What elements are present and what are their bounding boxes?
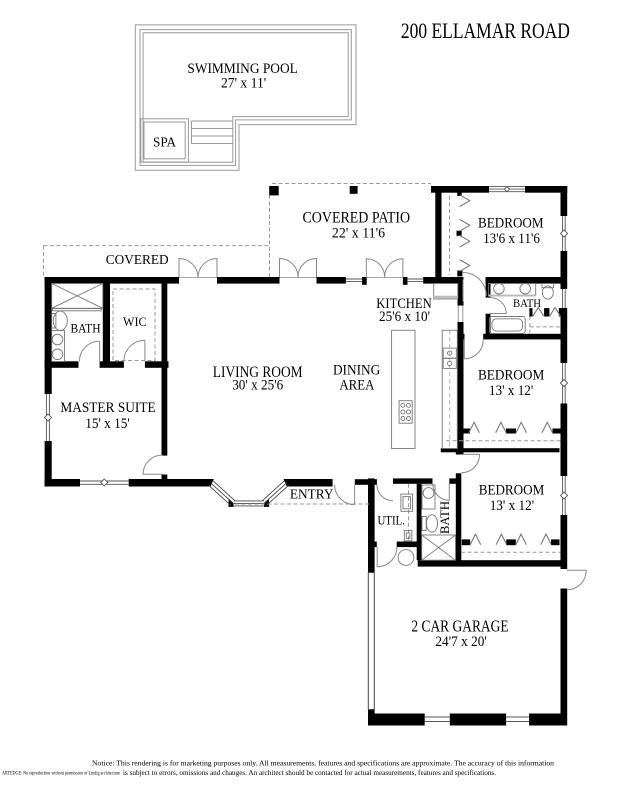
svg-text:15' x 15': 15' x 15' bbox=[85, 416, 130, 432]
svg-text:BEDROOM: BEDROOM bbox=[478, 368, 544, 384]
svg-text:BATH: BATH bbox=[513, 296, 541, 310]
svg-text:UTIL.: UTIL. bbox=[377, 513, 405, 527]
svg-text:BEDROOM: BEDROOM bbox=[479, 483, 545, 499]
svg-text:13' x 12': 13' x 12' bbox=[490, 498, 534, 514]
svg-text:13' x 12': 13' x 12' bbox=[489, 383, 533, 399]
svg-text:AREA: AREA bbox=[339, 377, 374, 393]
svg-text:200 ELLAMAR ROAD: 200 ELLAMAR ROAD bbox=[401, 18, 570, 43]
svg-text:is subject to errors, omission: is subject to errors, omissions and chan… bbox=[123, 769, 496, 777]
svg-text:COVERED PATIO: COVERED PATIO bbox=[303, 210, 411, 227]
svg-text:30' x 25'6: 30' x 25'6 bbox=[232, 378, 283, 394]
svg-text:2 CAR GARAGE: 2 CAR GARAGE bbox=[411, 617, 508, 636]
svg-text:24'7 x 20': 24'7 x 20' bbox=[435, 634, 487, 650]
svg-text:27' x 11': 27' x 11' bbox=[221, 76, 266, 92]
svg-text:COVERED: COVERED bbox=[106, 252, 169, 267]
svg-text:SWIMMING POOL: SWIMMING POOL bbox=[187, 61, 297, 77]
svg-text:22' x 11'6: 22' x 11'6 bbox=[332, 225, 385, 241]
svg-text:BATH: BATH bbox=[71, 321, 101, 335]
svg-text:MASTER SUITE: MASTER SUITE bbox=[60, 400, 155, 416]
svg-text:ARTEDGE: No reproduction witho: ARTEDGE: No reproduction without permiss… bbox=[2, 772, 121, 777]
svg-text:WIC: WIC bbox=[123, 315, 147, 329]
svg-text:ENTRY: ENTRY bbox=[290, 487, 334, 502]
svg-text:DINING: DINING bbox=[333, 362, 381, 378]
svg-text:BATH: BATH bbox=[438, 501, 452, 534]
svg-text:25'6 x 10': 25'6 x 10' bbox=[379, 309, 430, 325]
svg-text:BEDROOM: BEDROOM bbox=[478, 216, 544, 232]
svg-text:SPA: SPA bbox=[153, 135, 177, 150]
svg-text:13'6 x 11'6: 13'6 x 11'6 bbox=[483, 231, 540, 247]
svg-text:Notice: This rendering is for: Notice: This rendering is for marketing … bbox=[92, 760, 555, 768]
